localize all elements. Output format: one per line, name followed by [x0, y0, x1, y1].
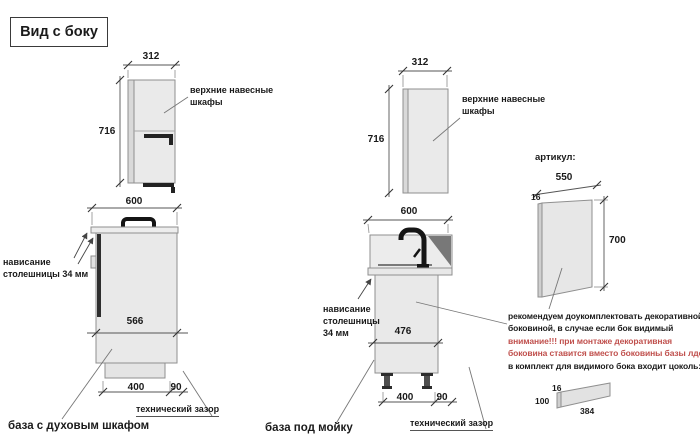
label-sink-overhang-line2: столешницы — [323, 315, 380, 327]
label-sink-overhang-line3: 34 мм — [323, 327, 380, 339]
label-sink-tech-gap: технический зазор — [410, 417, 493, 431]
dim-mid-wall-height: 716 — [368, 134, 385, 145]
label-sink-overhang-line1: нависание — [323, 303, 380, 315]
side-panel-drawing — [538, 200, 592, 297]
oven-base-drawing — [91, 219, 178, 378]
note-line-2: боковиной, в случае если бок видимый — [508, 322, 700, 334]
dim-left-wall-height: 716 — [99, 126, 116, 137]
label-oven-tech-gap: технический зазор — [136, 403, 219, 417]
dim-plinth-length: 384 — [580, 406, 594, 416]
label-mid-wall-line2: шкафы — [462, 105, 545, 117]
dim-panel-height: 700 — [609, 235, 626, 246]
label-mid-wall-cabinet: верхние навесные шкафы — [462, 93, 545, 117]
plinth-drawing — [557, 383, 610, 408]
label-oven-overhang-line2: столешницы 34 мм — [3, 268, 88, 280]
page-title: Вид с боку — [10, 17, 108, 47]
dim-sink-depth: 476 — [395, 326, 412, 337]
wall-cabinet-mid-drawing — [403, 89, 448, 193]
side-view-drawing-page: Вид с боку 312 716 верхние навесные шкаф… — [0, 0, 700, 438]
sink-base-drawing — [368, 230, 452, 389]
label-sink-overhang: нависание столешницы 34 мм — [323, 303, 380, 339]
label-left-wall-line1: верхние навесные — [190, 84, 273, 96]
label-left-wall-line2: шкафы — [190, 96, 273, 108]
dim-panel-width: 550 — [556, 172, 573, 183]
dim-panel-thickness: 16 — [531, 192, 540, 202]
note-line-1: рекомендуем доукомплектовать декоративно… — [508, 310, 700, 322]
dim-oven-depth: 566 — [127, 316, 144, 327]
dim-oven-gap: 90 — [170, 382, 181, 393]
caption-oven-base: база с духовым шкафом — [8, 420, 149, 432]
dim-plinth-thickness: 16 — [552, 383, 561, 393]
dim-left-wall-width: 312 — [143, 51, 160, 62]
label-artikul: артикул: — [535, 152, 576, 164]
note-line-4-warning: боковина ставится вместо боковины базы л… — [508, 347, 700, 359]
dim-sink-gap: 90 — [436, 392, 447, 403]
dim-mid-wall-width: 312 — [412, 57, 429, 68]
dim-sink-plinth: 400 — [397, 392, 414, 403]
dim-plinth-height: 100 — [535, 396, 549, 406]
dim-oven-plinth: 400 — [128, 382, 145, 393]
technical-linework — [0, 0, 700, 438]
label-oven-overhang: нависание столешницы 34 мм — [3, 256, 88, 280]
label-oven-overhang-line1: нависание — [3, 256, 88, 268]
label-left-wall-cabinet: верхние навесные шкафы — [190, 84, 273, 108]
dim-sink-width: 600 — [401, 206, 418, 217]
note-line-3-warning: внимание!!! при монтаже декоративная — [508, 335, 700, 347]
caption-sink-base: база под мойку — [265, 422, 353, 434]
dim-oven-width: 600 — [126, 196, 143, 207]
note-block: рекомендуем доукомплектовать декоративно… — [508, 310, 700, 372]
note-line-5: в комплект для видимого бока входит цоко… — [508, 360, 700, 372]
label-mid-wall-line1: верхние навесные — [462, 93, 545, 105]
wall-cabinet-left-drawing — [128, 80, 175, 193]
